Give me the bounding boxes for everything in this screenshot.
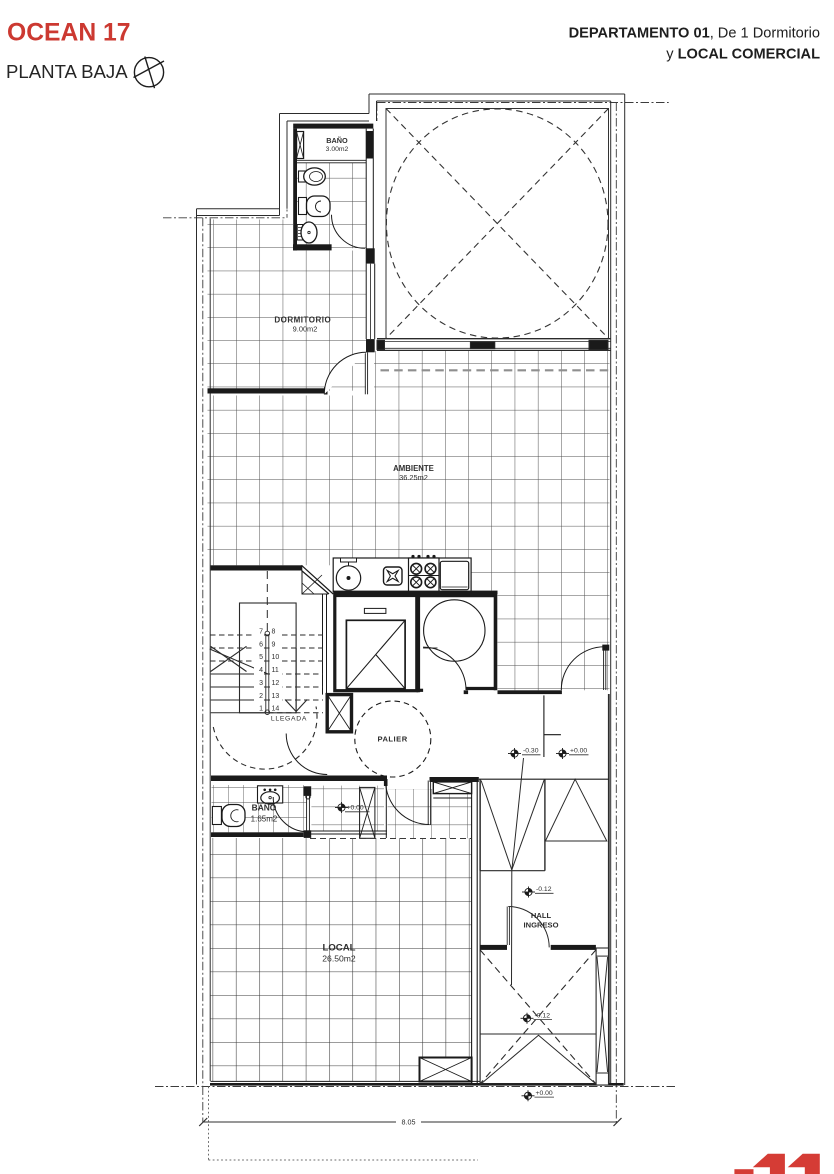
svg-text:2: 2 — [259, 693, 263, 700]
svg-text:LLEGADA: LLEGADA — [271, 716, 307, 723]
svg-text:4: 4 — [259, 667, 263, 674]
svg-text:+0.00: +0.00 — [570, 748, 587, 755]
svg-text:1: 1 — [259, 706, 263, 713]
svg-text:-0.12: -0.12 — [536, 886, 552, 893]
svg-text:10: 10 — [272, 654, 280, 661]
svg-text:LOCAL: LOCAL — [322, 943, 355, 954]
svg-text:y LOCAL COMERCIAL: y LOCAL COMERCIAL — [666, 47, 820, 63]
svg-text:PLANTA BAJA: PLANTA BAJA — [6, 61, 128, 82]
svg-text:6: 6 — [259, 641, 263, 648]
svg-text:11: 11 — [272, 667, 279, 674]
svg-text:9: 9 — [272, 641, 276, 648]
svg-text:1.65m2: 1.65m2 — [251, 815, 278, 824]
svg-text:BAÑO: BAÑO — [252, 803, 277, 813]
svg-text:3: 3 — [259, 680, 263, 687]
svg-text:OCEAN 17: OCEAN 17 — [7, 20, 130, 47]
svg-text:26.50m2: 26.50m2 — [322, 954, 356, 964]
svg-text:5: 5 — [259, 654, 263, 661]
svg-text:8: 8 — [272, 629, 276, 636]
svg-text:14: 14 — [272, 706, 280, 713]
svg-text:7: 7 — [259, 629, 263, 636]
svg-text:+0.00: +0.00 — [536, 1090, 553, 1097]
svg-text:-0.30: -0.30 — [523, 748, 539, 755]
svg-text:HALL: HALL — [531, 911, 552, 920]
svg-text:+0.00: +0.00 — [347, 805, 364, 812]
svg-text:-0.12: -0.12 — [535, 1012, 551, 1019]
svg-text:8.05: 8.05 — [402, 1118, 416, 1127]
svg-text:PALIER: PALIER — [377, 735, 407, 744]
svg-text:13: 13 — [272, 693, 280, 700]
svg-text:12: 12 — [272, 680, 280, 687]
svg-text:36.25m2: 36.25m2 — [399, 473, 428, 482]
svg-text:AMBIENTE: AMBIENTE — [393, 464, 434, 473]
svg-text:DORMITORIO: DORMITORIO — [274, 316, 331, 325]
svg-text:INGRESO: INGRESO — [523, 921, 558, 930]
svg-text:3.00m2: 3.00m2 — [326, 146, 349, 153]
svg-text:BAÑO: BAÑO — [326, 136, 348, 145]
svg-text:DEPARTAMENTO 01, De 1 Dormitor: DEPARTAMENTO 01, De 1 Dormitorio — [569, 26, 820, 42]
svg-text:9.00m2: 9.00m2 — [293, 325, 318, 334]
